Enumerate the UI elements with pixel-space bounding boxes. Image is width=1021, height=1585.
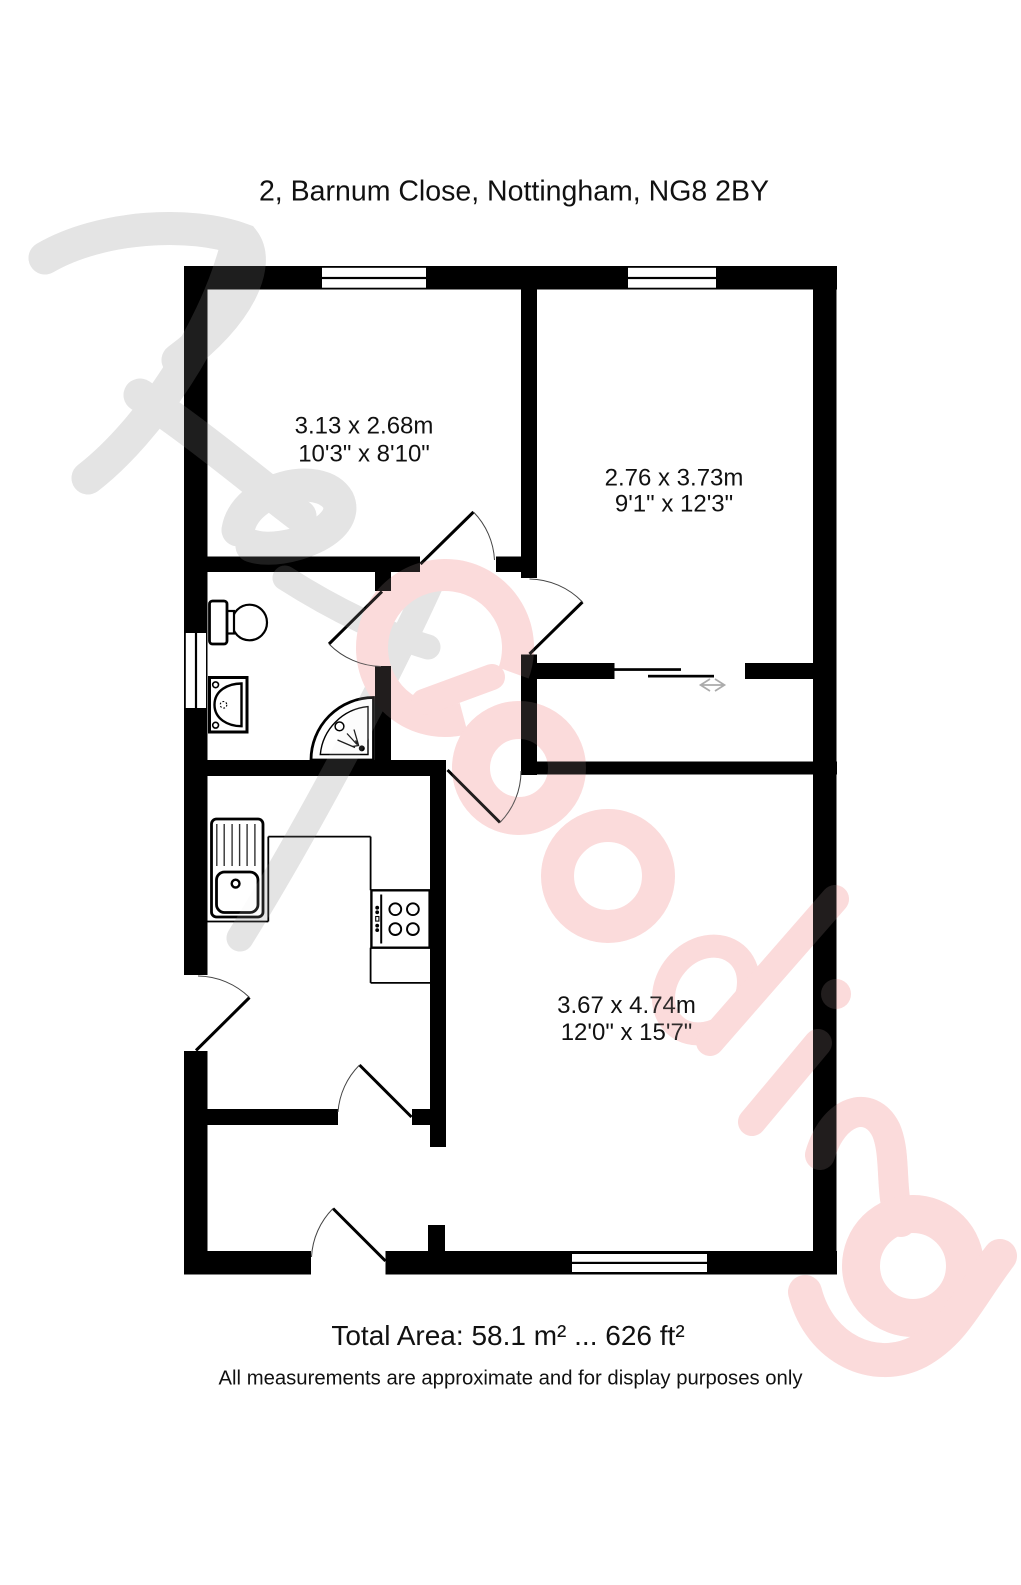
svg-text:2.76 x 3.73m: 2.76 x 3.73m	[605, 464, 744, 491]
svg-text:2, Barnum Close, Nottingham, N: 2, Barnum Close, Nottingham, NG8 2BY	[259, 176, 769, 208]
svg-text:Total Area: 58.1 m² ... 626 ft: Total Area: 58.1 m² ... 626 ft²	[331, 1320, 684, 1351]
svg-text:All measurements are approxima: All measurements are approximate and for…	[219, 1367, 804, 1389]
svg-text:9'1" x 12'3": 9'1" x 12'3"	[615, 491, 733, 518]
svg-text:3.13 x 2.68m: 3.13 x 2.68m	[295, 413, 434, 440]
svg-text:10'3" x 8'10": 10'3" x 8'10"	[298, 441, 430, 468]
